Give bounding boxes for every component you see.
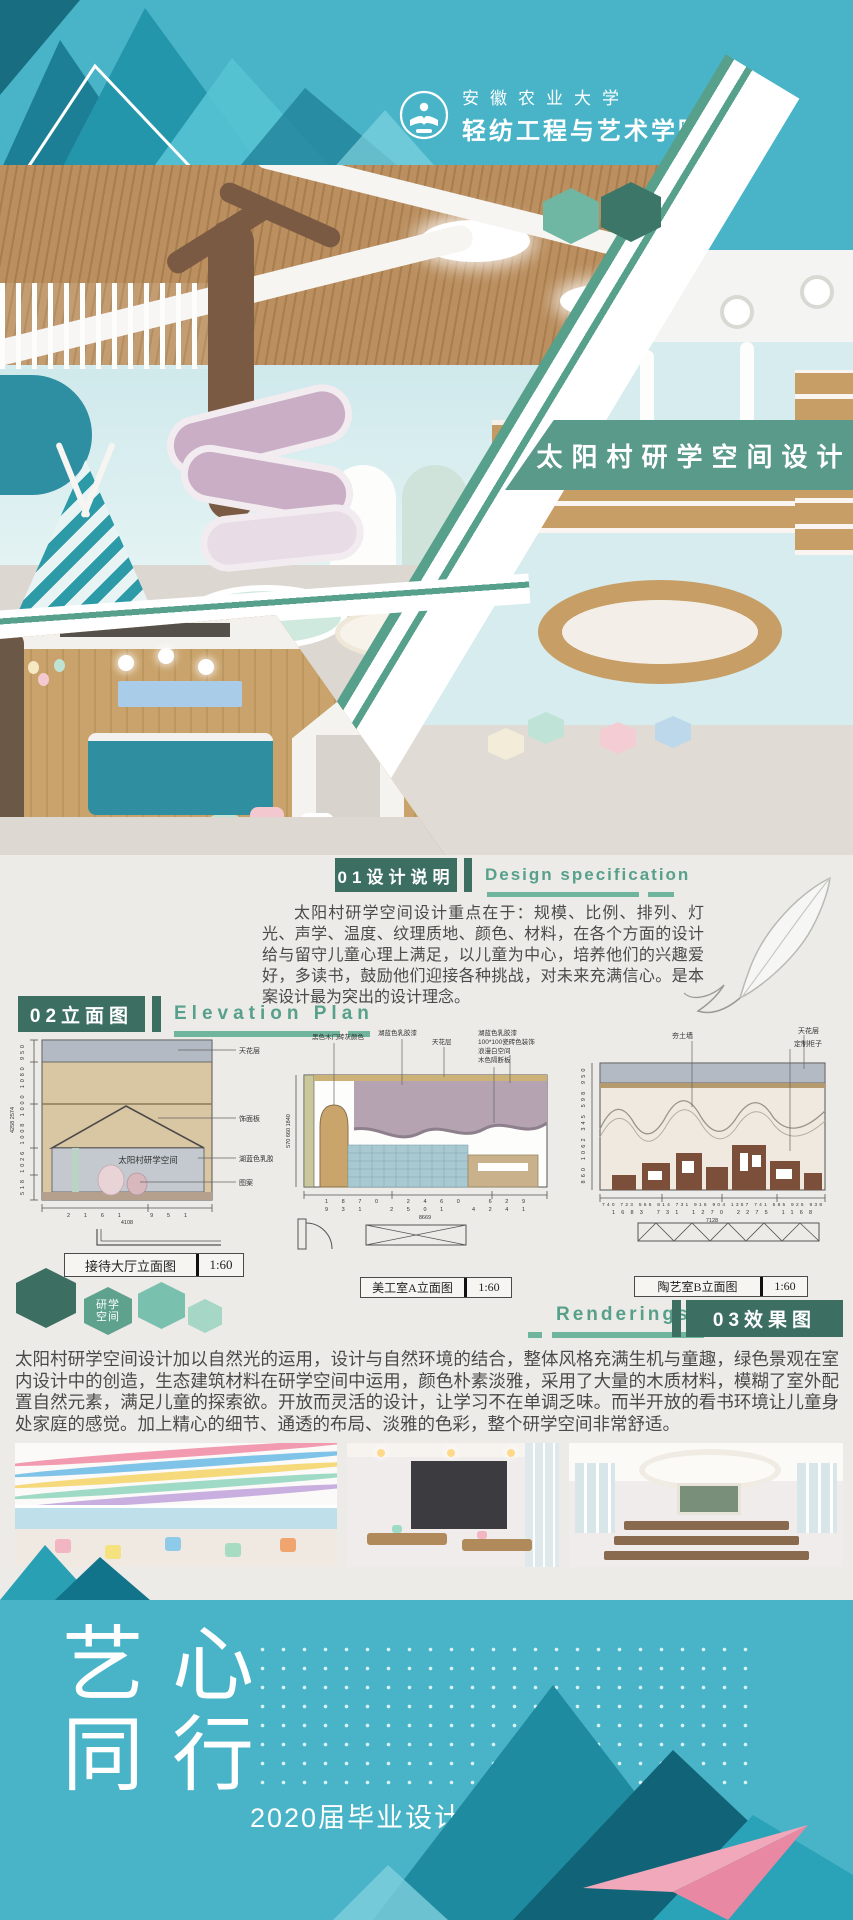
renderings-paragraph: 太阳村研学空间设计加以自然光的运用，设计与自然环境的结合，整体风格充满生机与童趣… (15, 1349, 839, 1435)
caption-reception-elevation: 接待大厅立面图1:60 (64, 1253, 244, 1277)
svg-text:4108: 4108 (121, 1220, 133, 1225)
recessed-light-shape (720, 295, 754, 329)
photo-collage: 太阳村研学空间设计 (0, 165, 853, 855)
content-band: 01设计说明 Design specification 太阳村研学空间设计重点在… (0, 855, 853, 1600)
svg-text:天花层: 天花层 (798, 1026, 819, 1035)
title-banner: 太阳村研学空间设计 (505, 420, 853, 490)
university-name-block: 安徽农业大学 轻纺工程与艺术学院 (462, 84, 705, 146)
toy-block-shape (165, 1537, 181, 1551)
section3-divider-bar (672, 1300, 681, 1337)
floor-shape (0, 817, 445, 855)
mountain-graphics (0, 0, 440, 172)
svg-text:定制柜子: 定制柜子 (794, 1039, 822, 1048)
desk-row-shape (604, 1551, 809, 1560)
elevation-drawing-art-room: 黑色木门砖灰颜色 湖蓝色乳胶漆 天花层 湖蓝色乳胶漆 100*100瓷砖色装饰 … (282, 1027, 572, 1225)
svg-text:2161 951: 2161 951 (67, 1213, 187, 1219)
balloon-shape (54, 659, 65, 672)
window-shape (797, 1463, 837, 1533)
recessed-light-shape (800, 275, 834, 309)
underline-bar (528, 1332, 542, 1338)
chalkboard-shape (411, 1461, 507, 1529)
svg-text:4258 2574: 4258 2574 (10, 1107, 16, 1133)
section2-divider-bar (152, 996, 161, 1032)
svg-text:湖蓝色乳胶漆: 湖蓝色乳胶漆 (478, 1028, 518, 1037)
svg-text:木色隔断板: 木色隔断板 (478, 1055, 511, 1064)
section2-number-box: 02立面图 (18, 996, 145, 1032)
section2-english-label: Elevation Plan (174, 1003, 374, 1025)
toy-block-shape (280, 1538, 296, 1552)
elevation-drawing-pottery-room: 夯土墙 天花层 定制柜子 860 1062 345 598 950 740 72… (572, 1025, 847, 1225)
reception-sign-shape (118, 681, 242, 707)
slogan-line2: 同行 (62, 1712, 282, 1800)
footer-mountain-graphics (333, 1630, 853, 1920)
wall-section-glyph (95, 1227, 225, 1249)
university-emblem-icon (398, 89, 450, 141)
wood-table-shape (367, 1533, 447, 1545)
truss-plan-glyph (636, 1217, 821, 1249)
pendant-lamp-shape (118, 655, 134, 671)
warm-light-shape (507, 1449, 515, 1457)
design-specification-paragraph: 太阳村研学空间设计重点在于：规模、比例、排列、灯光、声学、温度、纹理质地、颜色、… (262, 903, 704, 1008)
svg-text:饰面板: 饰面板 (239, 1114, 260, 1123)
svg-text:1683 731 1270 2275 116: 1683 731 1270 2275 1168 (612, 1210, 812, 1216)
hexagon-decor (138, 1282, 185, 1329)
svg-text:860 1062 345 598 950: 860 1062 345 598 950 (581, 1069, 587, 1184)
render-thumbnail-art-room (347, 1443, 559, 1567)
caption-art-room-elevation: 美工室A立面图1:60 (360, 1277, 512, 1298)
caption-pottery-room-elevation: 陶艺室B立面图1:60 (634, 1276, 808, 1297)
underline-bar (648, 892, 674, 897)
feather-icon (680, 873, 850, 1023)
svg-text:570 660 1840: 570 660 1840 (286, 1114, 292, 1148)
svg-text:湖蓝色乳胶漆: 湖蓝色乳胶漆 (378, 1028, 418, 1037)
warm-light-shape (447, 1449, 455, 1457)
slogan-line1: 艺心 (62, 1622, 282, 1710)
footer-band: 艺心 同行 2020届毕业设计作品联展 (0, 1600, 853, 1920)
underline-bar (487, 892, 639, 897)
svg-text:100*100瓷砖色装饰: 100*100瓷砖色装饰 (478, 1037, 535, 1046)
desk-row-shape (614, 1536, 799, 1545)
green-board-shape (677, 1483, 741, 1515)
svg-text:518 1026 1008 1000 108: 518 1026 1008 1000 1080 950 (20, 1045, 26, 1195)
toy-block-shape (225, 1543, 241, 1557)
underline-bar (552, 1332, 704, 1338)
warm-light-shape (377, 1449, 385, 1457)
balloon-shape (38, 673, 49, 686)
svg-text:浪漫白空间: 浪漫白空间 (478, 1046, 511, 1055)
svg-text:天花层: 天花层 (432, 1037, 452, 1046)
section3-english-label: Renderings (556, 1304, 691, 1326)
section1-divider-bar (464, 858, 472, 892)
hexagon-badge: 研学 空间 (84, 1287, 132, 1335)
svg-text:图案: 图案 (239, 1178, 253, 1187)
section3-number-box: 03效果图 (686, 1300, 843, 1337)
pendant-lamp-shape (198, 659, 214, 675)
poster-page: 安徽农业大学 轻纺工程与艺术学院 (0, 0, 853, 1920)
loft-railing-shape (0, 283, 225, 369)
svg-text:1870 2460 629: 1870 2460 629 (325, 1199, 525, 1205)
college-name: 轻纺工程与艺术学院 (462, 111, 705, 146)
mountain-graphics-small (0, 1537, 160, 1600)
hexagon-decor (16, 1268, 76, 1328)
round-book-display-inner (562, 600, 758, 664)
section1-english-label: Design specification (485, 865, 690, 885)
university-logo-block: 安徽农业大学 轻纺工程与艺术学院 (398, 84, 705, 146)
svg-text:931 2501 4241: 931 2501 4241 (325, 1207, 525, 1213)
render-thumbnail-lecture-room (569, 1443, 843, 1567)
svg-text:黑色木门砖灰颜色: 黑色木门砖灰颜色 (312, 1032, 365, 1041)
svg-text:太阳村研学空间: 太阳村研学空间 (118, 1155, 178, 1165)
section1-number-box: 01设计说明 (335, 858, 457, 892)
craft-item-shape (477, 1531, 487, 1539)
hexagon-decor (188, 1299, 222, 1333)
svg-text:湖蓝色乳胶漆: 湖蓝色乳胶漆 (239, 1154, 273, 1163)
desk-row-shape (624, 1521, 789, 1530)
reception-desk-shape (88, 733, 273, 815)
university-name: 安徽农业大学 (462, 84, 705, 109)
svg-text:740 723 566 814 731: 740 723 566 814 731 916 904 1357 741 585… (602, 1202, 822, 1208)
balloon-shape (28, 661, 39, 674)
wood-table-shape (462, 1539, 532, 1551)
poster-title: 太阳村研学空间设计 (506, 437, 851, 474)
window-shape (575, 1463, 615, 1533)
pendant-lamp-shape (158, 648, 174, 664)
elevation-drawing-reception: 太阳村研学空间 天花层 饰面板 湖蓝色乳胶漆 图案 518 1026 1008 … (8, 1030, 273, 1225)
craft-item-shape (392, 1525, 402, 1533)
svg-text:夯土墙: 夯土墙 (672, 1031, 693, 1040)
door-plan-glyph (296, 1215, 476, 1253)
svg-text:天花层: 天花层 (239, 1046, 260, 1055)
